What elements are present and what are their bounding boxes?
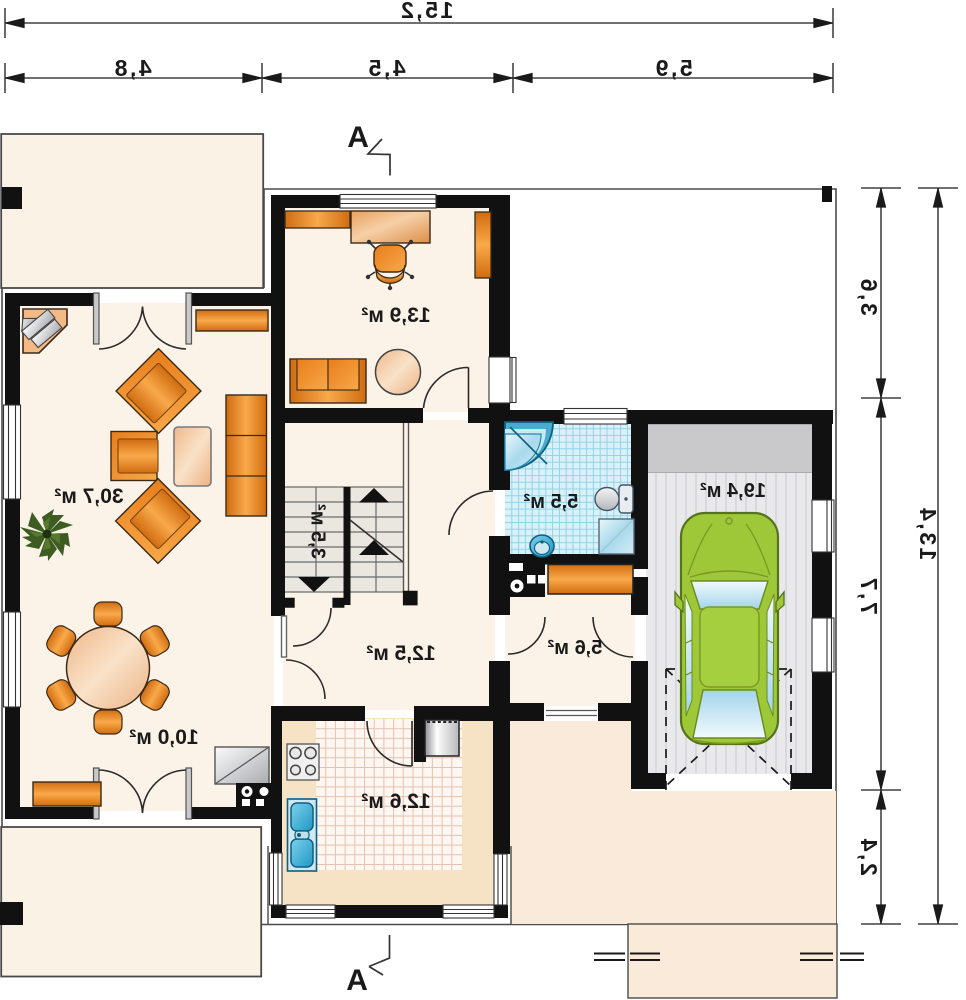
- svg-text:5,6 м²: 5,6 м²: [547, 637, 602, 659]
- svg-text:A: A: [347, 121, 369, 154]
- svg-text:13,4: 13,4: [915, 506, 941, 561]
- svg-text:12,5 м²: 12,5 м²: [366, 642, 435, 665]
- svg-text:7,7: 7,7: [856, 575, 882, 614]
- svg-text:10,0 м²: 10,0 м²: [129, 726, 198, 749]
- svg-text:4,5: 4,5: [366, 55, 405, 81]
- svg-text:5,5 м²: 5,5 м²: [523, 491, 578, 513]
- svg-text:4,8: 4,8: [112, 55, 151, 81]
- svg-text:3,5 м²: 3,5 м²: [307, 504, 329, 559]
- svg-text:30,7 м²: 30,7 м²: [54, 485, 123, 508]
- svg-text:15,2: 15,2: [399, 0, 454, 23]
- svg-text:13,9 м²: 13,9 м²: [361, 304, 430, 327]
- svg-text:3,6: 3,6: [856, 276, 882, 315]
- svg-text:19,4 м²: 19,4 м²: [700, 480, 766, 502]
- svg-text:2,4: 2,4: [856, 836, 882, 875]
- svg-text:12,6 м²: 12,6 м²: [361, 790, 430, 813]
- svg-text:A: A: [346, 964, 368, 997]
- svg-text:5,9: 5,9: [653, 55, 692, 81]
